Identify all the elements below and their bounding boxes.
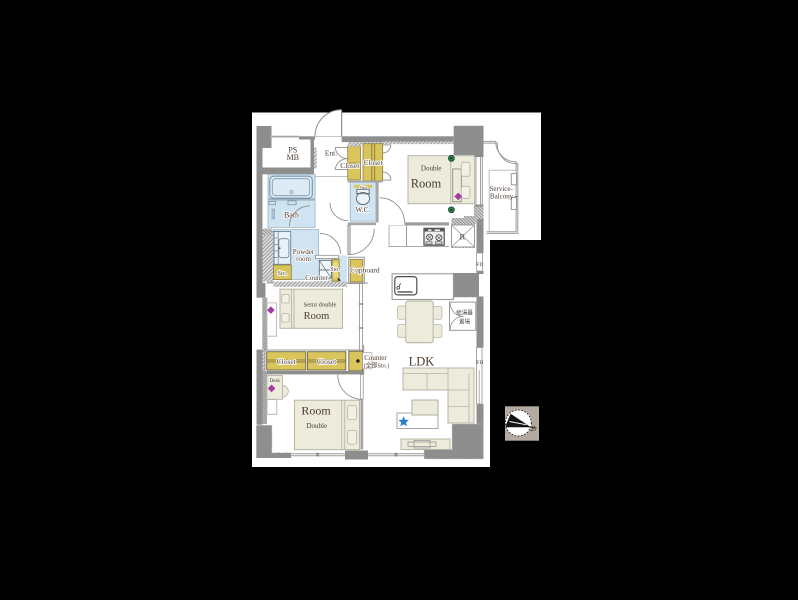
svg-text:Semi double: Semi double: [304, 301, 337, 308]
svg-text:Room: Room: [301, 404, 331, 418]
svg-text:Cupboard: Cupboard: [350, 265, 380, 274]
svg-text:(全部Sto.): (全部Sto.): [364, 362, 390, 370]
svg-text:Counter: Counter: [364, 354, 387, 362]
svg-text:置場: 置場: [459, 318, 471, 326]
svg-text:R: R: [459, 232, 465, 242]
svg-text:Desk: Desk: [270, 379, 281, 384]
svg-text:Double: Double: [306, 422, 327, 430]
svg-text:MB: MB: [287, 153, 299, 162]
svg-text:Closet: Closet: [277, 357, 297, 366]
svg-text:LDK: LDK: [409, 355, 435, 369]
svg-text:Sto.: Sto.: [278, 271, 288, 277]
svg-text:Counter: Counter: [305, 274, 328, 282]
svg-text:room: room: [296, 255, 311, 263]
svg-text:給湯器: 給湯器: [456, 309, 473, 317]
svg-text:Room: Room: [304, 311, 330, 322]
svg-text:Closet: Closet: [340, 161, 360, 170]
svg-text:Closet: Closet: [363, 158, 383, 167]
svg-text:Room: Room: [411, 177, 442, 191]
svg-text:Closet: Closet: [317, 357, 337, 366]
svg-text:Double: Double: [421, 165, 442, 173]
svg-text:FD: FD: [476, 262, 483, 268]
svg-text:FD: FD: [476, 360, 483, 366]
svg-text:Balcony: Balcony: [490, 193, 514, 201]
svg-text:Sto.: Sto.: [330, 267, 340, 273]
svg-text:W.C.: W.C.: [355, 205, 370, 214]
